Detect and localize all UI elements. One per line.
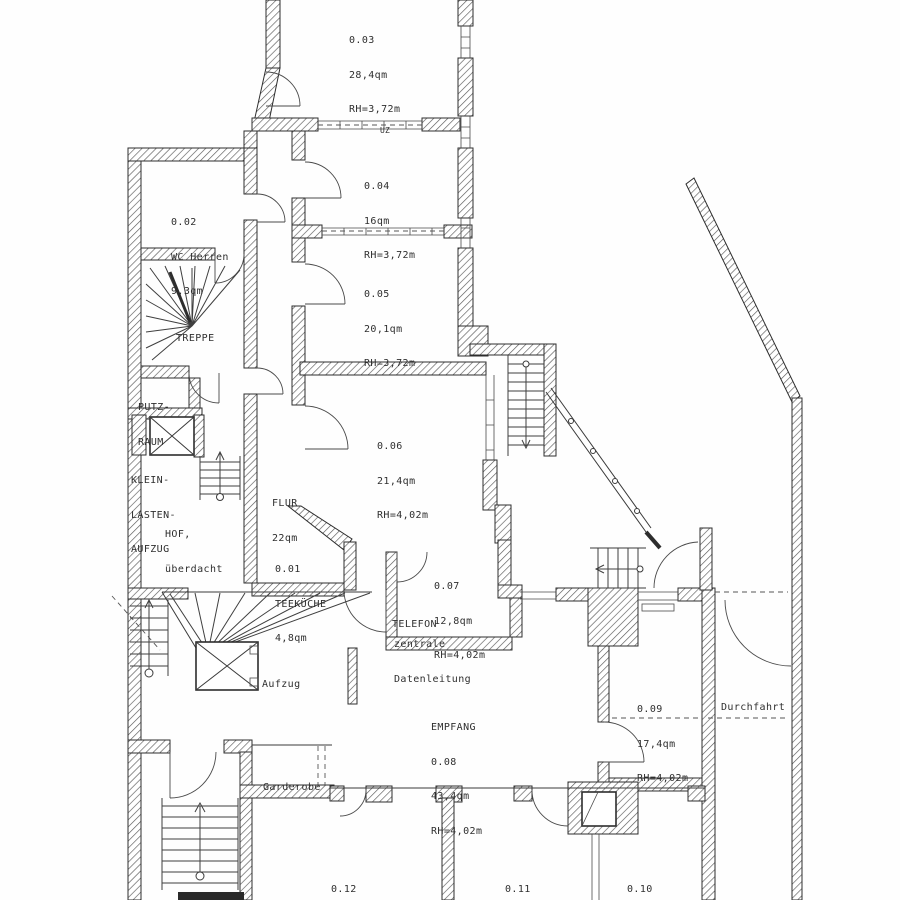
label-line: RH=4,02m (637, 773, 688, 785)
label-aufzug: Aufzug (262, 656, 301, 714)
label-line: HOF, (165, 529, 223, 541)
elevator-aufzug (196, 642, 258, 690)
label-line: 43,4qm (431, 791, 482, 803)
label-room-0-02: 0.02 WC Herren 9,3qm (171, 194, 229, 321)
label-room-0-06: 0.06 21,4qm RH=4,02m (377, 418, 428, 545)
label-line: EMPFANG (431, 722, 482, 734)
label-line: 0.06 (377, 441, 428, 453)
label-line: 0.11 (505, 884, 556, 896)
label-line: 20,1qm (364, 324, 415, 336)
railing-diagonal (546, 388, 660, 548)
label-line: WC Herren (171, 252, 229, 264)
label-line: Datenleitung (394, 674, 471, 686)
label-line: 0.09 (637, 704, 688, 716)
label-line: 16qm (364, 216, 415, 228)
label-line: 9,3qm (171, 286, 229, 298)
label-line: 17,4qm (637, 739, 688, 751)
label-line: 0.03 (349, 35, 400, 47)
scanned-floor-plan: 0.03 28,4qm RH=3,72m UZ 0.04 16qm RH=3,7… (0, 0, 900, 900)
label-line: 0.07 (434, 581, 485, 593)
label-room-0-11: 0.11 21,8qm RH=4,02m (505, 861, 556, 900)
label-durchfahrt: Durchfahrt (721, 679, 785, 737)
label-line: RH=3,72m (364, 250, 415, 262)
label-line: RH=3,72m (364, 358, 415, 370)
label-empfang: EMPFANG 0.08 43,4qm RH=4,02m (431, 699, 482, 860)
label-garderobe: Garderobe (263, 759, 321, 817)
label-room-0-09: 0.09 17,4qm RH=4,02m (637, 681, 688, 808)
label-room-0-05: 0.05 20,1qm RH=3,72m (364, 266, 415, 393)
shaft-detail (582, 792, 616, 826)
label-datenleitung: zentrale Datenleitung (394, 616, 471, 708)
label-line: überdacht (165, 564, 223, 576)
label-room-0-01: 0.01 TEEKÜCHE 4,8qm (275, 541, 326, 668)
label-line: PUTZ- (138, 402, 170, 414)
label-line: 0.02 (171, 217, 229, 229)
staircase-fan-lobby (162, 592, 372, 652)
label-line: Garderobe (263, 782, 321, 794)
label-uz: UZ (380, 108, 400, 153)
label-line: TEEKÜCHE (275, 599, 326, 611)
label-room-0-12: 0.12 27,8qm RH=4,02m (331, 861, 382, 900)
label-line: 28,4qm (349, 70, 400, 82)
label-line: UZ (380, 126, 400, 135)
label-line: Durchfahrt (721, 702, 785, 714)
label-line: RH=4,02m (431, 826, 482, 838)
label-line: RAUM (138, 437, 170, 449)
label-line: RH=4,02m (377, 510, 428, 522)
label-line: 0.12 (331, 884, 382, 896)
label-line: KLEIN- (131, 475, 176, 487)
label-line: 4,8qm (275, 633, 326, 645)
label-line: FLUR (272, 498, 298, 510)
staircase-hof-north (200, 452, 240, 501)
label-line: TREPPE (176, 333, 215, 345)
label-treppe: TREPPE (176, 310, 215, 368)
label-line: zentrale (394, 639, 471, 651)
label-line: 0.04 (364, 181, 415, 193)
label-line: 0.10 (627, 884, 678, 896)
staircase-exterior-east (508, 355, 544, 456)
staircase-empfang-ne (596, 548, 643, 588)
label-line: 0.01 (275, 564, 326, 576)
label-line: 21,4qm (377, 476, 428, 488)
label-line: 0.08 (431, 757, 482, 769)
label-line: Aufzug (262, 679, 301, 691)
label-hof: HOF, überdacht (165, 506, 223, 598)
staircase-bottom-left (162, 798, 244, 900)
label-line: 0.05 (364, 289, 415, 301)
label-room-0-10: 0.10 15,5qm RH=4,02m (627, 861, 678, 900)
